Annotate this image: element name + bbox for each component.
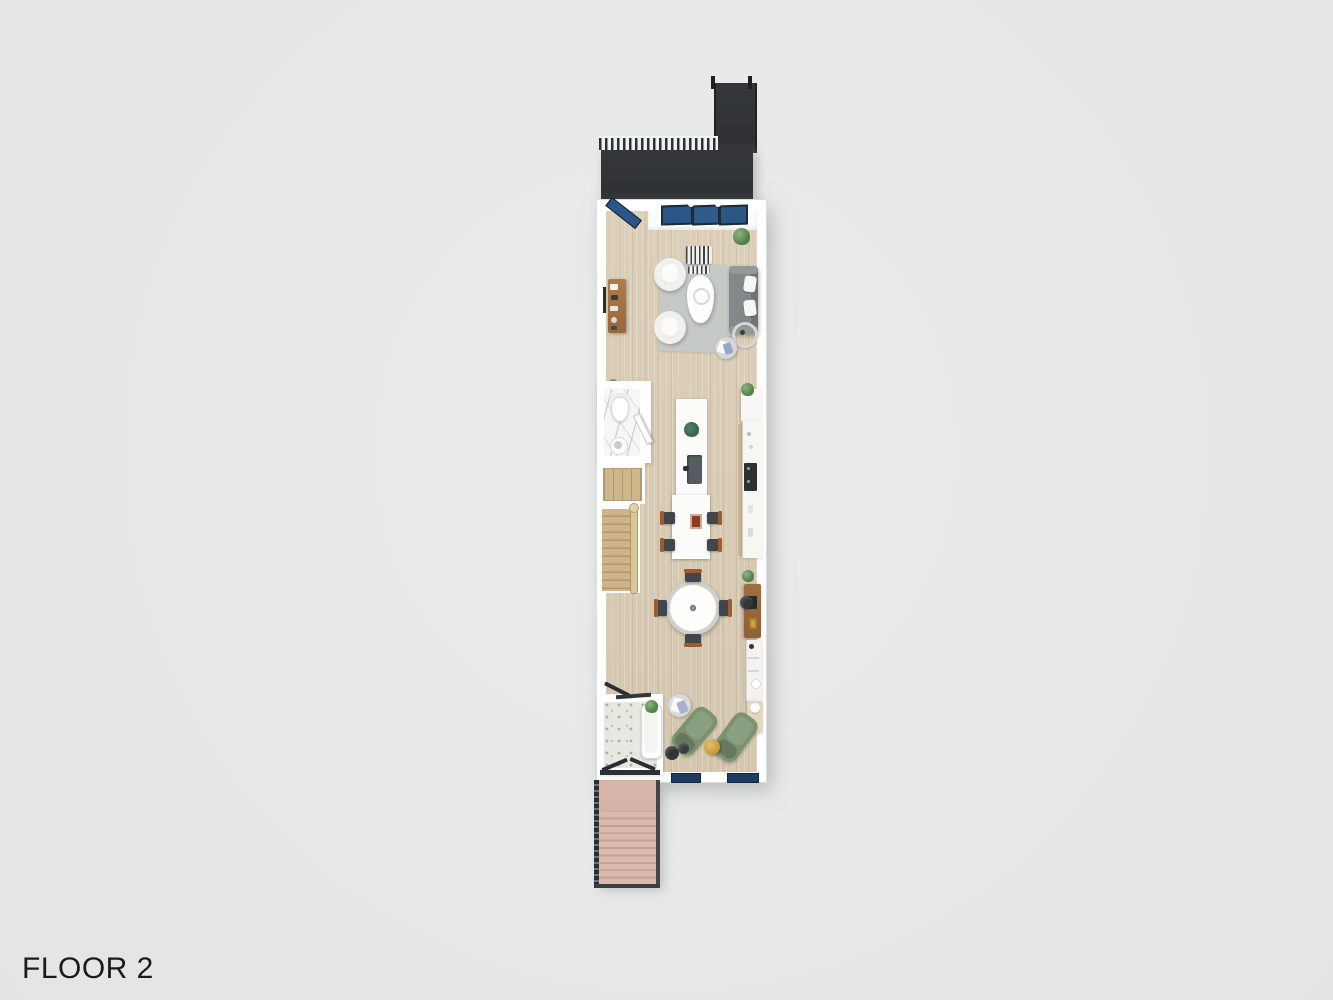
bottom-window-1 — [671, 773, 701, 783]
plant-living-corner — [733, 228, 750, 245]
shelf-divider-2 — [748, 670, 759, 672]
exit-threshold — [600, 770, 660, 775]
deck-post-left — [711, 76, 715, 89]
exterior-stairs — [597, 812, 659, 886]
floor-label: FLOOR 2 — [22, 952, 154, 986]
plant-desk — [742, 570, 754, 582]
desk-chair — [740, 596, 753, 609]
window-glass-2 — [692, 205, 720, 226]
console-decor-2 — [611, 295, 618, 300]
counter-item-3 — [748, 505, 753, 513]
dark-stool-2 — [678, 743, 689, 754]
deck-railing — [599, 136, 718, 150]
dining-chair-right-back — [728, 599, 732, 617]
bar-chair-3-back — [718, 511, 722, 525]
bar-chair-4-back — [718, 538, 722, 552]
coffee-table-tray — [693, 288, 710, 305]
oven-knob-2 — [747, 480, 750, 483]
bar-chair-2 — [663, 539, 675, 551]
roof-deck — [601, 147, 753, 206]
dining-chair-left-back — [654, 599, 658, 617]
counter-item-4 — [748, 528, 753, 537]
island-sink — [687, 455, 702, 484]
window-glass-3 — [719, 204, 748, 225]
interior-stairs — [602, 509, 633, 591]
console-decor-1 — [610, 284, 618, 290]
plant-on-cabinet — [741, 383, 754, 396]
console-decor-4 — [611, 317, 617, 323]
sink-faucet — [683, 466, 689, 471]
bar-chair-2-back — [660, 538, 664, 552]
dining-chair-top — [685, 572, 701, 582]
wall-post-1 — [688, 201, 694, 207]
daybed-pillow — [750, 703, 760, 713]
console-decor-5 — [611, 326, 617, 330]
plant-bathroom — [645, 700, 658, 713]
bar-chair-1 — [663, 512, 675, 524]
bar-chair-1-back — [660, 511, 664, 525]
oven-cooktop — [744, 463, 757, 491]
window-glass-1 — [661, 204, 693, 225]
exterior-stair-rail-right — [656, 780, 660, 888]
exterior-stairs-landing — [597, 780, 659, 812]
dining-chair-bottom-back — [684, 643, 702, 647]
gold-side-table — [704, 739, 720, 755]
closet-wardrobe — [603, 468, 642, 501]
counter-item-1 — [747, 432, 751, 436]
deck-post-right — [748, 76, 752, 89]
dark-stool-1 — [665, 746, 679, 760]
sink-basin — [614, 441, 622, 449]
striped-ottoman — [688, 266, 710, 274]
bottom-window-2 — [727, 773, 759, 783]
shelf-divider-1 — [748, 657, 759, 659]
shelf-item-dark — [749, 644, 754, 649]
stair-railing-knob — [629, 503, 639, 513]
dining-chair-left — [657, 600, 667, 616]
stair-railing — [630, 506, 638, 594]
dining-table-center — [690, 605, 696, 611]
console-decor-3 — [610, 306, 618, 311]
bathtub-basin — [644, 708, 657, 753]
dining-chair-top-back — [684, 569, 702, 573]
counter-item-2 — [749, 445, 753, 449]
desk — [744, 584, 761, 638]
island-plant — [684, 422, 699, 437]
wall-post-2 — [715, 201, 721, 207]
striped-bench — [686, 246, 712, 264]
floor-lamp-base — [740, 330, 745, 335]
shelf-item-round — [751, 679, 761, 689]
desk-lamp — [749, 618, 757, 629]
red-tray — [690, 514, 702, 529]
exterior-stair-rail-left — [594, 780, 599, 888]
oven-knob-1 — [747, 467, 750, 470]
wall-tv — [603, 287, 606, 313]
floor-plan-canvas: FLOOR 2 — [0, 0, 1333, 1000]
deck-walkway — [714, 83, 757, 153]
sofa-armrest-top — [729, 266, 758, 274]
sofa-pillow-2 — [743, 299, 757, 316]
sofa-pillow-1 — [743, 275, 757, 293]
exterior-stairs-bottom-edge — [594, 884, 660, 888]
